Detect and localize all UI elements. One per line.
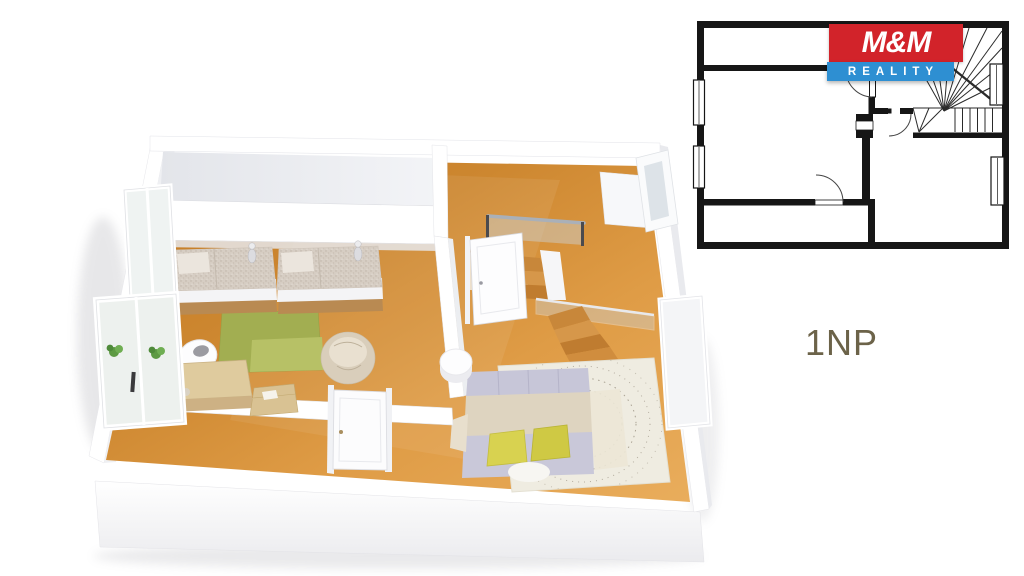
brand-logo: M&M REALITY bbox=[827, 24, 967, 81]
pillow-yellow-left bbox=[487, 430, 527, 466]
interior-door bbox=[327, 385, 392, 474]
open-door bbox=[465, 233, 527, 325]
round-stool bbox=[440, 349, 472, 383]
beanbag bbox=[321, 332, 375, 384]
bay-window-right bbox=[660, 296, 710, 428]
bay-window-upper-left bbox=[124, 186, 176, 298]
brand-logo-brand: M&M bbox=[829, 24, 963, 62]
pillow bbox=[281, 251, 314, 273]
toy-figure-2 bbox=[354, 241, 362, 261]
pillow bbox=[177, 252, 210, 274]
page: M&M REALITY 1NP bbox=[0, 0, 1024, 576]
window-right-2 bbox=[991, 157, 1004, 205]
window-right-1 bbox=[990, 64, 1003, 105]
floor-label: 1NP bbox=[805, 322, 878, 364]
double-bed bbox=[450, 368, 594, 482]
strip-room-front-wall bbox=[156, 200, 441, 244]
blanket bbox=[464, 392, 592, 438]
room-strip-top-left bbox=[154, 152, 441, 251]
wooden-chest bbox=[250, 384, 298, 416]
brand-logo-tagline: REALITY bbox=[827, 62, 954, 81]
window-left-2 bbox=[694, 146, 705, 188]
single-bed-1 bbox=[172, 247, 277, 315]
flue-gap bbox=[856, 121, 873, 130]
window-left-1 bbox=[694, 80, 705, 125]
door-handle bbox=[339, 430, 343, 434]
pillow-yellow-right bbox=[531, 425, 570, 461]
bay-window-lower-left bbox=[96, 294, 184, 428]
sheet-blob bbox=[508, 462, 550, 482]
door-handle bbox=[479, 281, 483, 285]
single-bed-2 bbox=[277, 246, 383, 314]
toy-figure-1 bbox=[248, 243, 256, 263]
door-leaf-bottom bbox=[815, 200, 843, 205]
